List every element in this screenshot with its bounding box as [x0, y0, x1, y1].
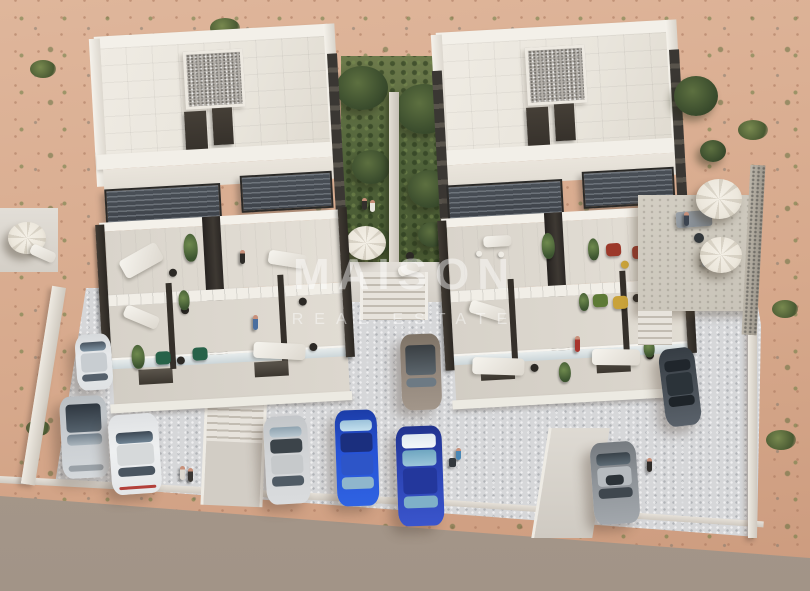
person [180, 466, 185, 480]
car-white-sedan [107, 412, 162, 495]
sun-lounger [472, 357, 525, 376]
patio-table [694, 233, 704, 243]
shrub [766, 430, 796, 450]
dining-table [483, 235, 512, 248]
ground-door [254, 360, 289, 377]
gravel-roof-box [183, 49, 246, 110]
sun-lounger [592, 349, 640, 366]
armchair-green [155, 351, 171, 365]
stairwell-door [526, 107, 550, 150]
person [456, 448, 461, 460]
person [370, 200, 375, 212]
stairwell-window [212, 107, 234, 145]
car-bronze [400, 333, 443, 410]
person [188, 468, 193, 482]
ground-door [138, 368, 173, 385]
sun-lounger [253, 342, 306, 361]
garden-tree [336, 66, 388, 110]
car-blue-white-roof [395, 425, 444, 527]
car-blue [334, 409, 379, 506]
bush [700, 140, 726, 162]
aerial-render-scene: MAISON REAL ESTATE [0, 0, 810, 591]
stairwell-window [554, 103, 576, 141]
watermark-subtitle: REAL ESTATE [0, 311, 810, 329]
shrub [738, 120, 768, 140]
armchair-green [192, 347, 208, 361]
building-left [86, 21, 357, 414]
garden-tree [352, 150, 390, 184]
car-silver-sedan [263, 415, 312, 505]
stroller [449, 458, 456, 467]
person [647, 458, 652, 472]
shrub [30, 60, 56, 78]
person [362, 198, 367, 210]
parasol [696, 179, 742, 219]
car-silver-suv [59, 395, 110, 479]
person [684, 212, 689, 226]
car-gray-sedan [589, 440, 641, 525]
pergola-right [240, 171, 334, 213]
person [575, 336, 580, 352]
watermark-title: MAISON [0, 250, 810, 300]
gravel-roof-box [525, 45, 588, 106]
stairwell-door [184, 111, 208, 154]
tree [674, 76, 718, 116]
car-white-suv [74, 333, 114, 391]
